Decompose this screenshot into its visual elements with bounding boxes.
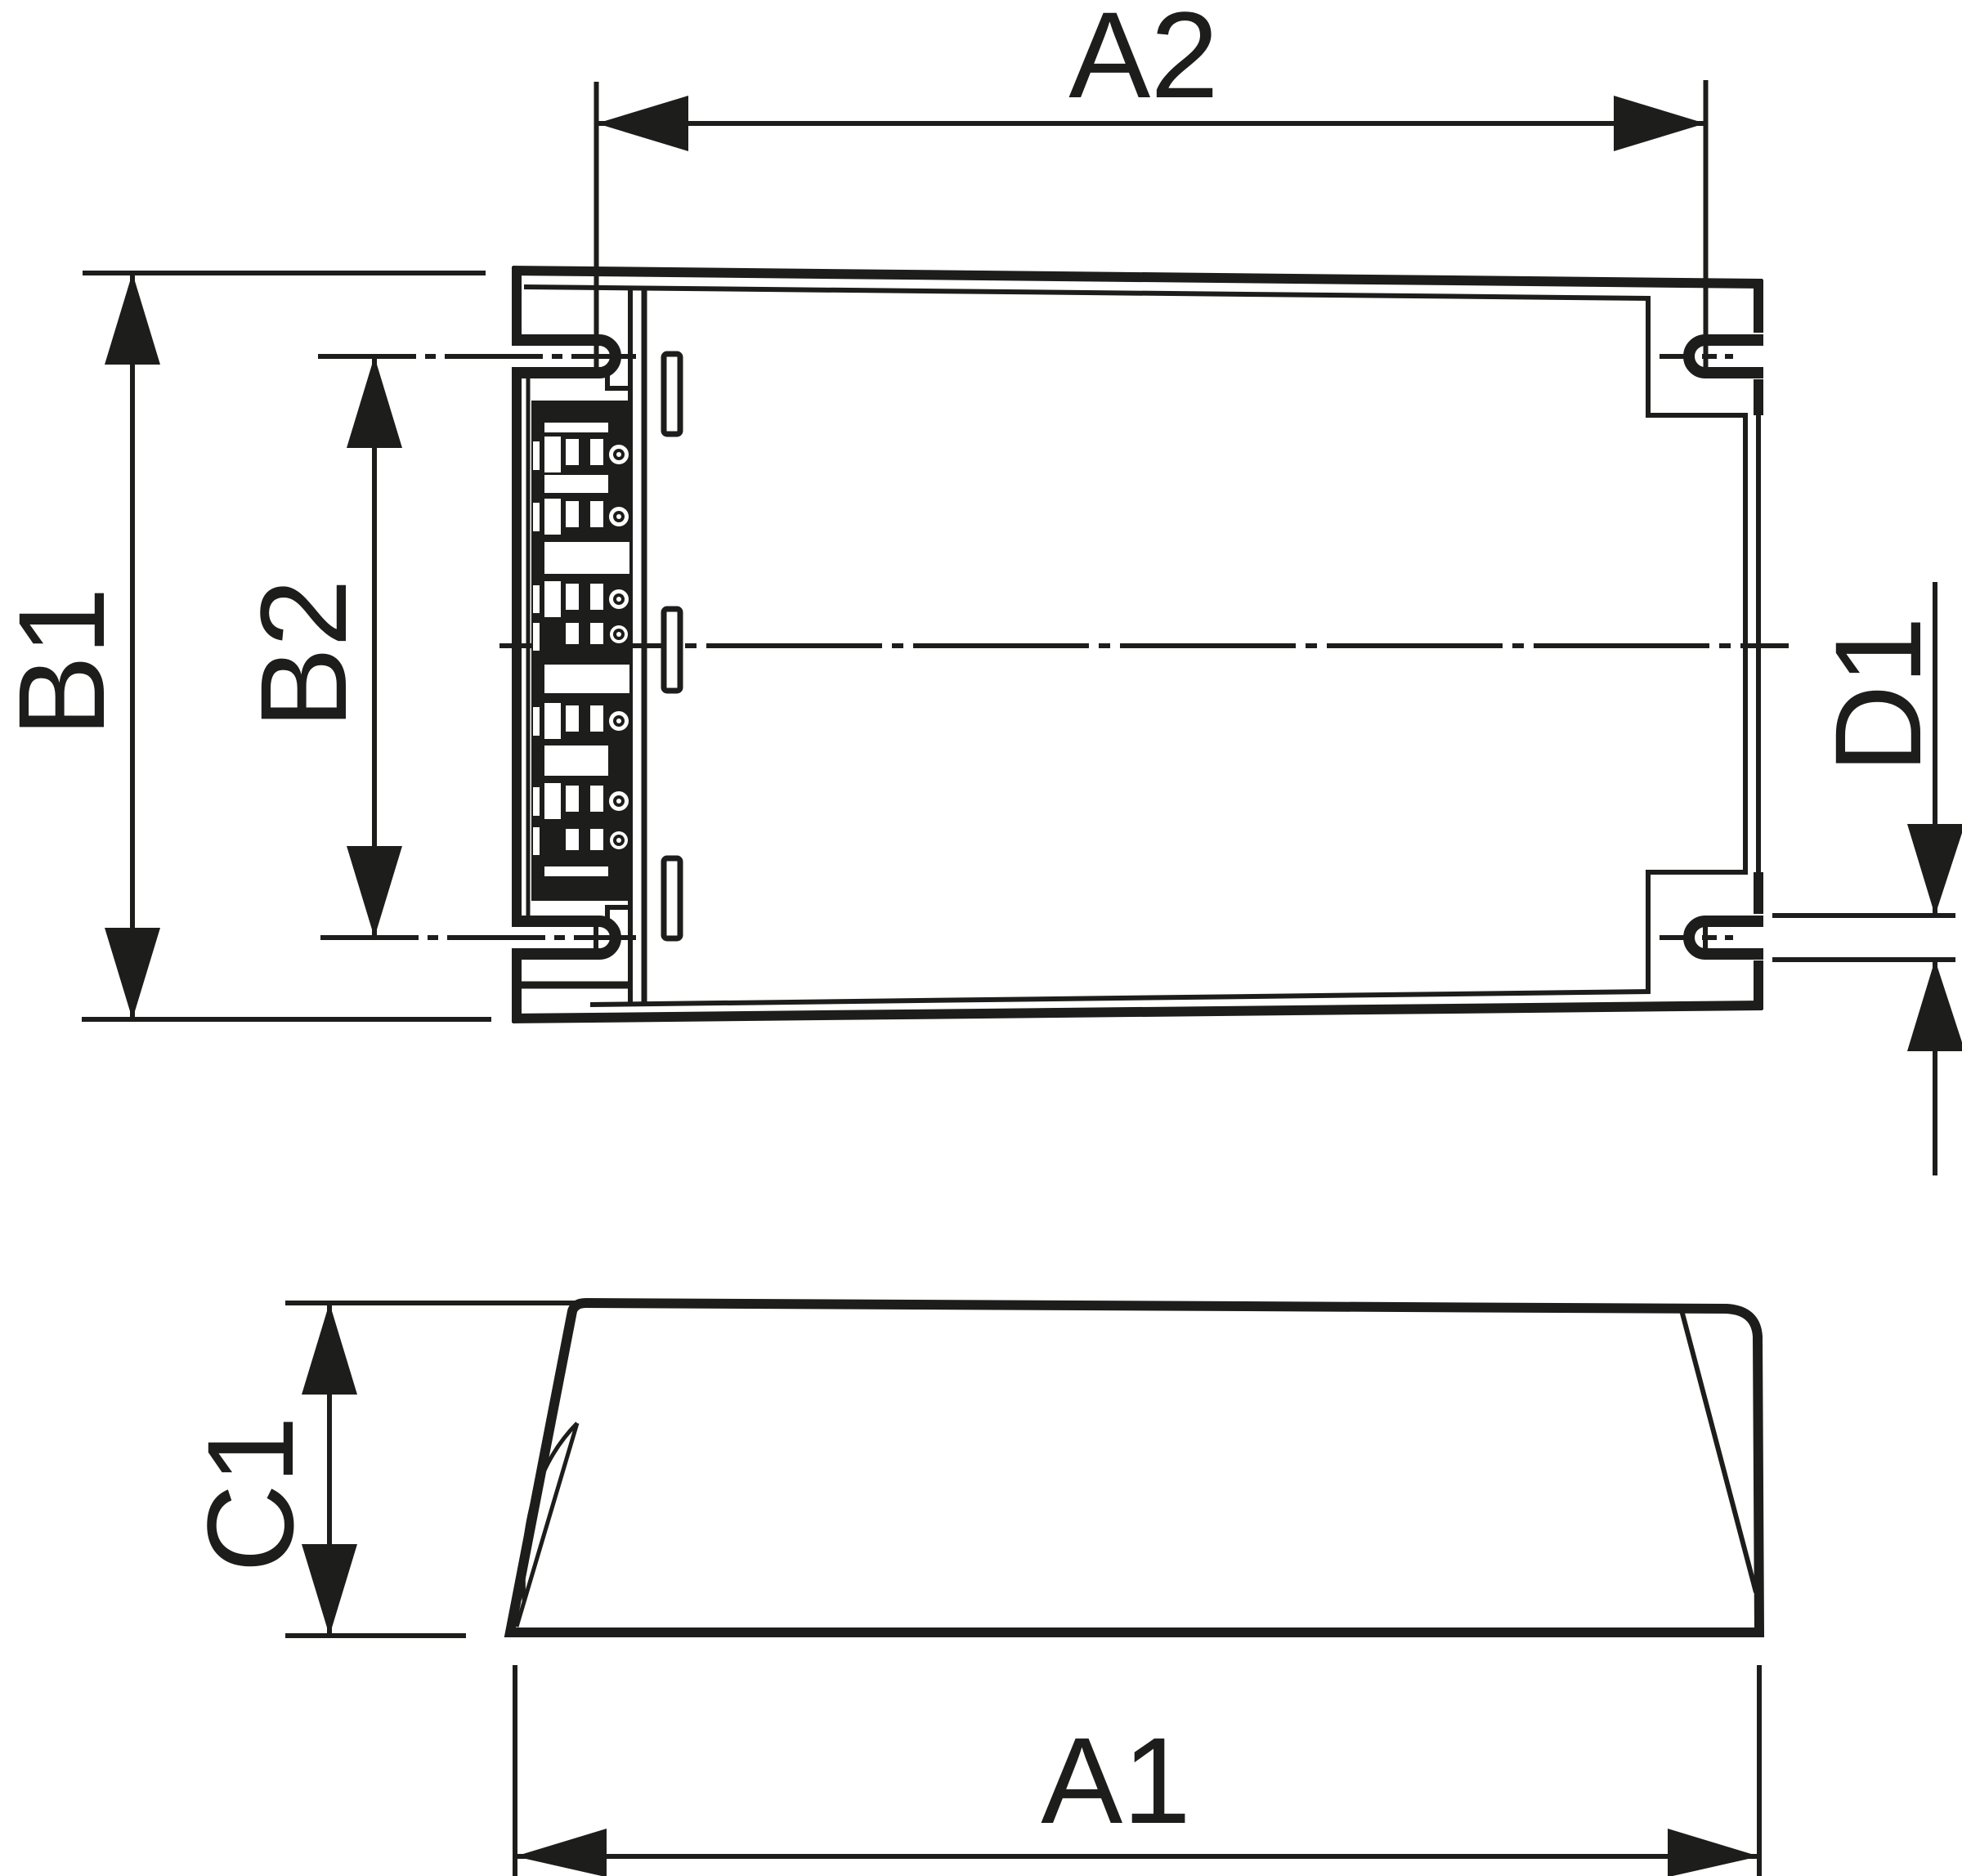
- svg-text:D1: D1: [1809, 616, 1946, 773]
- svg-text:A1: A1: [1041, 1712, 1190, 1849]
- svg-text:B1: B1: [0, 587, 130, 737]
- svg-text:B2: B2: [235, 579, 372, 728]
- svg-text:A2: A2: [1068, 0, 1218, 123]
- svg-text:C1: C1: [181, 1416, 319, 1573]
